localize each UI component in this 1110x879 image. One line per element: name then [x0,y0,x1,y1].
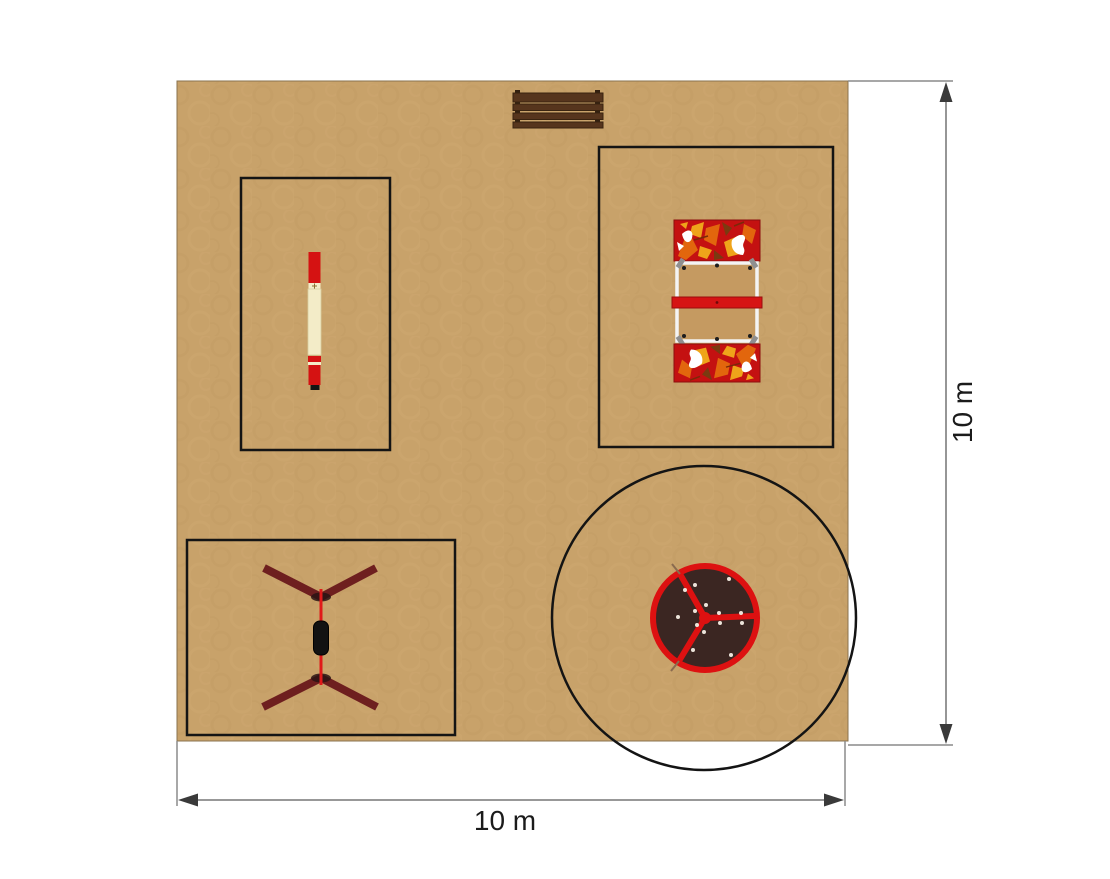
play-structure-icon [672,220,762,382]
beam-red-band [308,356,321,362]
arrowhead-down-icon [940,724,953,744]
red-bar-bolt [716,301,719,304]
bench-slat [513,122,603,128]
bench-slat [513,104,603,111]
carousel-icon [653,564,757,671]
width-dimension: 10 m [177,741,845,836]
bench-slat [513,93,603,102]
beam-black-tip [311,385,320,390]
bench-icon [513,90,603,128]
playground-plan: 10 m 10 m [0,0,1110,879]
width-dimension-label: 10 m [474,805,536,836]
arrowhead-right-icon [824,794,844,807]
beam-cream-middle [308,289,321,355]
bench-slat [513,113,603,120]
beam-gap [308,362,321,365]
carousel-hub [699,612,711,624]
swing-seat [314,621,329,655]
beam-red-top [309,252,321,283]
arrowhead-up-icon [940,82,953,102]
arrowhead-left-icon [178,794,198,807]
plan-drawing: 10 m 10 m [0,0,1110,879]
height-dimension: 10 m [848,81,978,745]
height-dimension-label: 10 m [947,381,978,443]
beam-red-bottom [309,365,321,385]
balance-beam-icon [308,252,321,390]
